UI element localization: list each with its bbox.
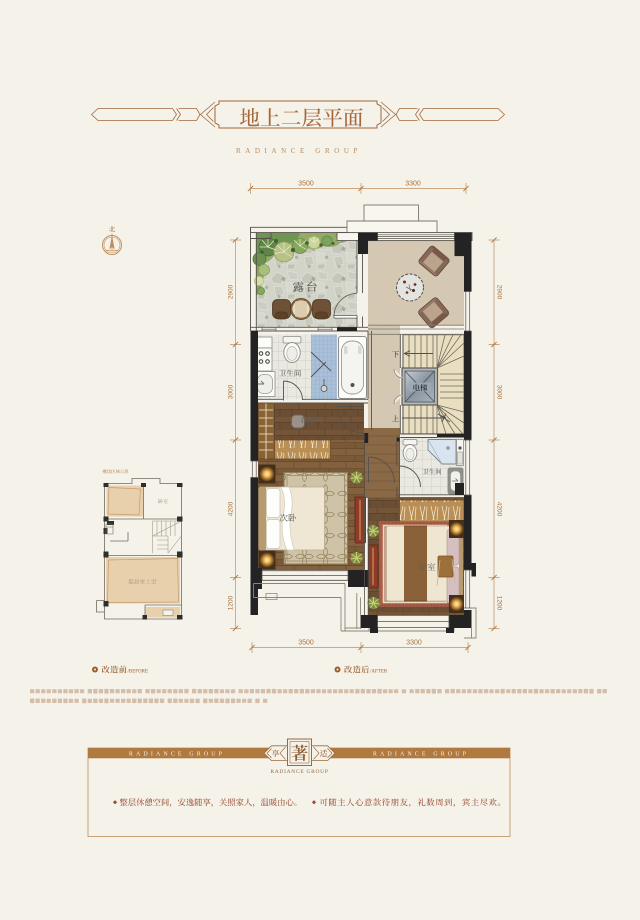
- svg-text:3500: 3500: [298, 640, 314, 647]
- svg-text:/BEFORE: /BEFORE: [128, 670, 149, 675]
- svg-text:4200: 4200: [496, 502, 503, 517]
- svg-text:3000: 3000: [228, 384, 235, 399]
- svg-text:3500: 3500: [298, 181, 314, 188]
- svg-text:RADIANCE GROUP: RADIANCE GROUP: [270, 769, 328, 775]
- svg-text:3000: 3000: [496, 385, 503, 400]
- svg-text:3300: 3300: [406, 640, 422, 647]
- svg-text:1200: 1200: [496, 596, 503, 611]
- svg-text:RADIANCE GROUP: RADIANCE GROUP: [236, 147, 362, 155]
- svg-text:3300: 3300: [405, 181, 421, 188]
- svg-text:2900: 2900: [228, 284, 235, 299]
- svg-text:4200: 4200: [228, 501, 235, 516]
- svg-text:2900: 2900: [496, 285, 503, 300]
- svg-text:1200: 1200: [228, 595, 235, 610]
- svg-text:RADIANCE GROUP: RADIANCE GROUP: [129, 752, 225, 758]
- svg-text:/AFTER: /AFTER: [370, 670, 388, 675]
- svg-text:RADIANCE GROUP: RADIANCE GROUP: [373, 752, 469, 758]
